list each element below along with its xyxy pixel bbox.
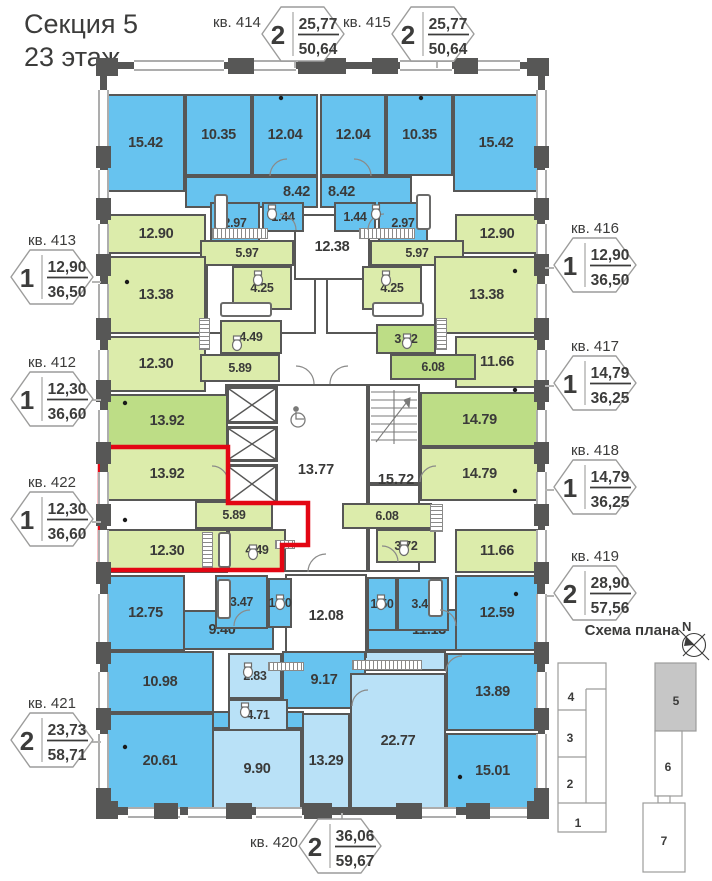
svg-text:50,64: 50,64 [299, 41, 338, 58]
apartment-stats-hexagon: 2 25,77 50,64 [261, 6, 345, 62]
svg-text:1: 1 [563, 251, 577, 281]
room: 13.29 [302, 713, 350, 809]
apartment-badge-414[interactable]: кв. 414 2 25,77 50,64 [213, 6, 345, 62]
svg-text:2: 2 [563, 579, 577, 609]
room: 14.79 [420, 392, 539, 447]
apartment-badge-416[interactable]: кв. 416 1 12,90 36,50 [551, 220, 639, 293]
apartment-number: кв. 416 [571, 220, 619, 237]
room: 10.35 [185, 94, 252, 176]
room: 12.59 [455, 575, 539, 651]
minimap-left-building: 4 3 2 1 [558, 663, 606, 832]
room: 20.61 [106, 713, 214, 809]
room: 13.89 [446, 653, 539, 731]
apartment-number: кв. 414 [213, 14, 261, 31]
svg-text:25,77: 25,77 [429, 16, 468, 33]
svg-text:1: 1 [20, 263, 34, 293]
svg-text:1: 1 [563, 369, 577, 399]
stairwell [368, 384, 420, 484]
bathtub-icon [416, 194, 431, 230]
apartment-badge-412[interactable]: кв. 412 1 12,30 36,60 [8, 354, 96, 427]
bathtub-icon [220, 302, 272, 317]
svg-text:58,71: 58,71 [48, 747, 87, 764]
room: 12.30 [106, 336, 206, 392]
svg-text:14,79: 14,79 [591, 469, 630, 486]
bathtub-icon [428, 579, 443, 617]
room: 22.77 [350, 673, 446, 809]
apartment-badge-417[interactable]: кв. 417 1 14,79 36,25 [551, 338, 639, 411]
apartment-number: кв. 418 [571, 442, 619, 459]
elevator-shaft [226, 426, 278, 462]
apartment-number: кв. 419 [571, 548, 619, 565]
room: 14.79 [420, 447, 539, 501]
building-scheme-minimap: Схема плана N 4 3 2 1 5 6 7 [548, 613, 712, 881]
minimap-right-building: 5 6 7 [643, 663, 696, 872]
apartment-number: кв. 417 [571, 338, 619, 355]
svg-text:12,90: 12,90 [591, 247, 630, 264]
room: 12.75 [106, 575, 185, 651]
apartment-badge-422[interactable]: кв. 422 1 12,30 36,60 [8, 474, 96, 547]
apartment-number: кв. 422 [28, 474, 76, 491]
room: 4.71 [228, 699, 288, 731]
elevator-shaft [226, 464, 278, 504]
apartment-stats-hexagon: 1 12,90 36,50 [553, 237, 637, 293]
room: 12.90 [455, 214, 539, 254]
svg-text:1: 1 [20, 385, 34, 415]
apartment-badge-420[interactable]: кв. 420 2 36,06 59,67 [250, 818, 382, 874]
apartment-number: кв. 420 [250, 834, 298, 851]
room: 15.42 [453, 94, 539, 192]
minimap-section-5[interactable]: 5 [673, 694, 680, 708]
svg-text:14,79: 14,79 [591, 365, 630, 382]
room: 13.38 [106, 256, 206, 334]
svg-text:36,25: 36,25 [591, 494, 630, 511]
apartment-stats-hexagon: 2 25,77 50,64 [391, 6, 475, 62]
room: 13.38 [434, 256, 539, 334]
room: 2.83 [228, 653, 282, 699]
minimap-title: Схема плана [585, 622, 680, 639]
minimap-section-6[interactable]: 6 [665, 760, 672, 774]
svg-text:2: 2 [401, 20, 415, 50]
apartment-number: кв. 413 [28, 232, 76, 249]
apartment-badge-418[interactable]: кв. 418 1 14,79 36,25 [551, 442, 639, 515]
wardrobe-hatch [352, 660, 422, 670]
corridor-area-label: 13.77 [276, 462, 356, 478]
wardrobe-hatch [199, 318, 210, 350]
floorplan-page: Секция 5 23 этаж 8.42 8.42 9.40 11.13 12… [0, 0, 712, 881]
floor-plan: 8.42 8.42 9.40 11.13 12.08 12.38 15.42 1… [100, 62, 545, 815]
svg-text:12,30: 12,30 [48, 381, 87, 398]
bathtub-icon [372, 302, 424, 317]
room: 1.44 [262, 202, 304, 232]
room: 12.90 [106, 214, 206, 254]
apartment-stats-hexagon: 2 36,06 59,67 [298, 818, 382, 874]
svg-text:36,25: 36,25 [591, 390, 630, 407]
apartment-badge-421[interactable]: кв. 421 2 23,73 58,71 [8, 695, 96, 768]
room: 5.89 [195, 501, 273, 529]
apartment-stats-hexagon: 1 12,30 36,60 [10, 371, 94, 427]
room: 12.04 [252, 94, 318, 176]
bathtub-icon [214, 194, 228, 230]
north-label: N [682, 619, 691, 634]
wardrobe-hatch [202, 532, 213, 568]
room: 12.08 [285, 574, 367, 658]
apartment-stats-hexagon: 1 14,79 36,25 [553, 355, 637, 411]
svg-text:2: 2 [20, 726, 34, 756]
svg-text:36,50: 36,50 [48, 284, 87, 301]
apartment-stats-hexagon: 2 23,73 58,71 [10, 712, 94, 768]
bathtub-icon [217, 579, 231, 619]
room: 12.04 [320, 94, 386, 176]
apartment-stats-hexagon: 1 14,79 36,25 [553, 459, 637, 515]
wardrobe-hatch [212, 228, 268, 239]
wardrobe-hatch [430, 504, 443, 532]
room: 1.50 [367, 577, 397, 631]
room: 13.92 [106, 447, 228, 501]
svg-text:2: 2 [271, 20, 285, 50]
apartment-stats-hexagon: 1 12,30 36,60 [10, 491, 94, 547]
apartment-number: кв. 412 [28, 354, 76, 371]
room: 1.50 [268, 578, 292, 628]
room: 10.35 [386, 94, 453, 176]
wardrobe-hatch [359, 228, 415, 239]
svg-text:1: 1 [563, 473, 577, 503]
svg-text:36,60: 36,60 [48, 526, 87, 543]
room: 3.72 [376, 529, 436, 563]
apartment-stats-hexagon: 1 12,90 36,50 [10, 249, 94, 305]
room: 13.92 [106, 394, 228, 447]
minimap-section-1[interactable]: 1 [575, 816, 582, 830]
svg-text:23,73: 23,73 [48, 722, 87, 739]
apartment-badge-413[interactable]: кв. 413 1 12,90 36,50 [8, 232, 96, 305]
room: 11.66 [455, 529, 539, 573]
room: 15.01 [446, 733, 539, 809]
bathtub-icon [218, 532, 231, 568]
svg-text:12,90: 12,90 [48, 259, 87, 276]
svg-text:36,06: 36,06 [336, 828, 375, 845]
apartment-number: кв. 415 [343, 14, 391, 31]
svg-text:36,60: 36,60 [48, 406, 87, 423]
apartment-badge-419[interactable]: кв. 419 2 28,90 57,56 [551, 548, 639, 621]
svg-text:2: 2 [308, 832, 322, 862]
svg-text:1: 1 [20, 505, 34, 535]
stairs-area-label: 15.72 [360, 472, 432, 488]
compass-icon [679, 630, 709, 660]
svg-text:25,77: 25,77 [299, 16, 338, 33]
apartment-number: кв. 421 [28, 695, 76, 712]
room: 10.98 [106, 651, 214, 713]
room: 9.90 [212, 729, 302, 809]
svg-text:36,50: 36,50 [591, 272, 630, 289]
minimap-section-2[interactable]: 2 [567, 777, 574, 791]
svg-text:59,67: 59,67 [336, 853, 375, 870]
wardrobe-hatch [436, 318, 447, 350]
room: 4.49 [220, 320, 282, 354]
svg-text:50,64: 50,64 [429, 41, 468, 58]
minimap-section-7[interactable]: 7 [661, 834, 668, 848]
room: 5.89 [200, 354, 280, 382]
minimap-section-3[interactable]: 3 [567, 731, 574, 745]
section-title: Секция 5 [24, 8, 138, 41]
wardrobe-hatch [268, 662, 304, 671]
svg-text:12,30: 12,30 [48, 501, 87, 518]
svg-text:28,90: 28,90 [591, 575, 630, 592]
room: 6.08 [342, 503, 432, 529]
minimap-section-4[interactable]: 4 [568, 690, 575, 704]
room: 3.72 [376, 324, 436, 354]
room: 5.97 [200, 240, 294, 266]
room: 6.08 [390, 354, 476, 380]
room: 15.42 [106, 94, 185, 192]
room: 4.49 [228, 529, 286, 571]
elevator-shaft [226, 386, 278, 424]
apartment-badge-415[interactable]: кв. 415 2 25,77 50,64 [343, 6, 475, 62]
wardrobe-hat+ch [275, 540, 295, 549]
